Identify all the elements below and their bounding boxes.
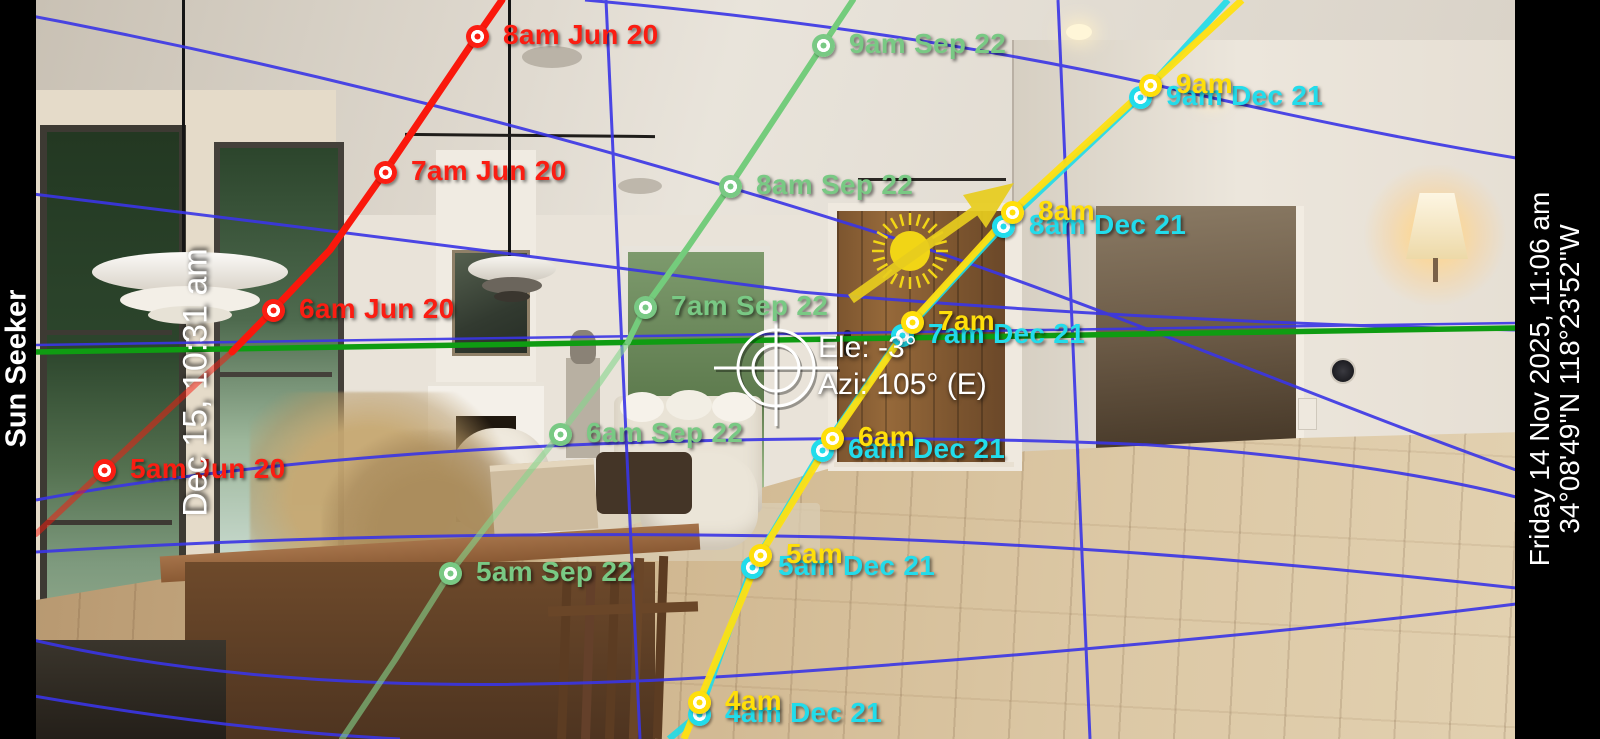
downlight xyxy=(1200,90,1222,104)
elevation-readout: Ele: -3° xyxy=(818,329,987,366)
pedestal xyxy=(566,358,600,458)
pendant-cord xyxy=(508,0,511,256)
sofa-pillow xyxy=(666,390,712,420)
light-switch xyxy=(1298,398,1317,430)
ceiling-speaker xyxy=(618,178,662,194)
camera-viewport[interactable]: 5am Jun 206am Jun 207am Jun 208am Jun 20… xyxy=(0,0,1600,739)
app-title: Sun Seeker xyxy=(1,219,34,519)
door-threshold xyxy=(834,462,1014,467)
pendant-shade xyxy=(494,291,530,302)
location-coordinates-text: 34°08'49''N 118°23'52''W xyxy=(1554,154,1586,604)
coffee-table xyxy=(596,452,692,514)
box-on-table xyxy=(490,458,599,535)
sconce-stem xyxy=(1433,258,1438,282)
curtain-rod xyxy=(858,178,1006,181)
sofa-pillow xyxy=(620,392,664,422)
window-left-mullion xyxy=(40,520,172,525)
window-left2-mullion xyxy=(214,372,332,377)
selected-datetime-text: Dec 15, 10:31 am xyxy=(177,223,216,543)
window-left-mullion xyxy=(40,330,172,335)
downlight xyxy=(1066,24,1092,40)
current-datetime-text: Friday 14 Nov 2025, 11:06 am xyxy=(1524,154,1556,604)
bottom-left-shadow xyxy=(36,640,226,739)
sofa-pillow xyxy=(712,392,756,422)
vase xyxy=(570,330,596,364)
room-scene xyxy=(0,0,1600,739)
azimuth-readout: Azi: 105° (E) xyxy=(818,366,987,403)
reticle-readout: Ele: -3° Azi: 105° (E) xyxy=(818,329,987,403)
pendant-cord xyxy=(182,0,185,258)
thermostat xyxy=(1330,358,1356,384)
ceiling-speaker xyxy=(522,46,582,68)
